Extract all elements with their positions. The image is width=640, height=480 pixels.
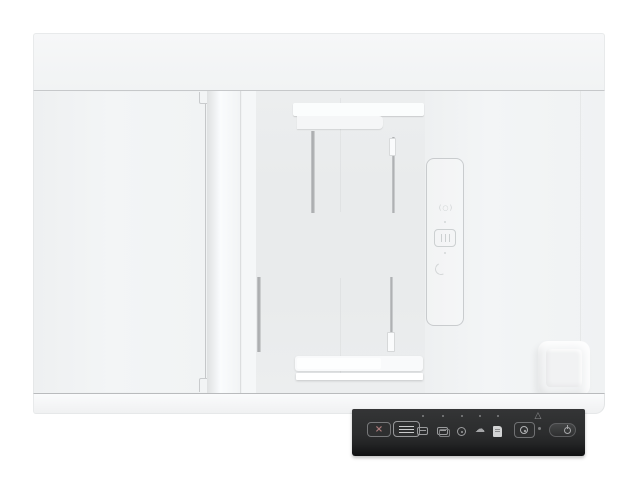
shortcut-led <box>497 415 499 417</box>
lid-hinge-seam <box>205 92 206 392</box>
scan-icon <box>520 426 528 434</box>
adf-side-wall <box>242 91 256 393</box>
shortcut-led <box>479 415 481 417</box>
adf-input-paper-guide <box>293 103 424 116</box>
warning-indicator: △ <box>531 410 545 422</box>
adf-input-paper-guide-extension <box>297 116 383 129</box>
media-mark-icon: (○) <box>433 203 459 213</box>
adf-left-edge-bar <box>207 91 241 393</box>
adf-output-paper-guide-inner <box>297 358 381 369</box>
emboss-dot <box>444 252 446 254</box>
shortcut-led <box>442 415 444 417</box>
adf-output-tray-lip <box>296 373 423 380</box>
status-led <box>538 427 541 430</box>
guide-slot <box>257 277 261 352</box>
guide-slot <box>311 131 315 213</box>
cloud-icon: ☁ <box>473 426 487 437</box>
simplex-scan-icon <box>416 426 430 437</box>
guide-slider <box>387 332 395 352</box>
power-icon-tick <box>567 425 568 429</box>
lid-corner-pad <box>538 341 590 396</box>
cancel-button: × <box>367 422 391 437</box>
control-panel: × ☁ △ <box>352 409 585 456</box>
guide-slider <box>389 138 396 156</box>
document-icon <box>491 426 505 437</box>
lid-corner-pad-face <box>546 349 582 387</box>
gear-icon <box>455 426 469 437</box>
shortcut-led <box>422 415 424 417</box>
duplex-scan-icon <box>436 426 450 437</box>
flatbed-lid <box>34 92 205 392</box>
adf-access-panel: (○) <box>426 158 464 326</box>
emboss-dot <box>444 221 446 223</box>
scanner-rear-cover <box>33 33 605 91</box>
power-button <box>549 423 576 437</box>
curl-arrow-icon <box>433 261 448 276</box>
scan-button <box>514 422 535 438</box>
shortcut-led <box>461 415 463 417</box>
product-photo-scanner-top-view: (○) × ☁ <box>0 0 640 480</box>
paper-stack-icon <box>434 229 456 247</box>
